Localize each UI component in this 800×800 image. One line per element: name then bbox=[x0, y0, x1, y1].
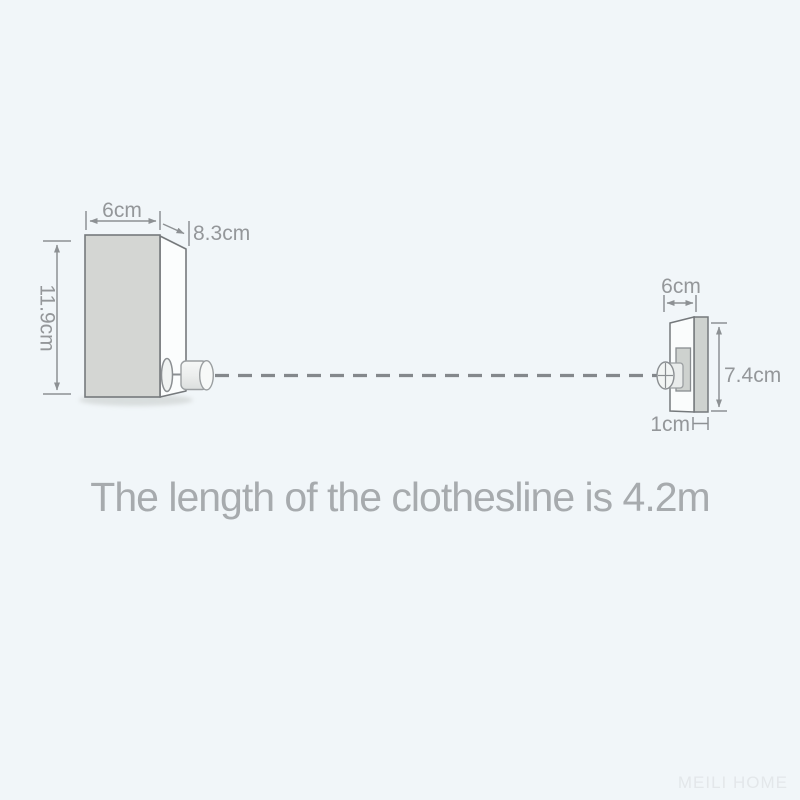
product-dimension-diagram: 6cm 8.3cm 11.9cm bbox=[0, 0, 800, 800]
right-unit: 6cm 7.4cm 1cm bbox=[650, 275, 781, 436]
left-height-label: 11.9cm bbox=[35, 284, 58, 351]
right-height-label: 7.4cm bbox=[724, 364, 781, 387]
caption-text: The length of the clothesline is 4.2m bbox=[0, 474, 800, 521]
diagram-canvas: 6cm 8.3cm 11.9cm bbox=[0, 0, 800, 800]
dimension-right-depth bbox=[693, 417, 708, 430]
spool-end-cap bbox=[200, 361, 214, 390]
left-unit-spool bbox=[162, 359, 214, 392]
right-width-label: 6cm bbox=[661, 275, 701, 298]
watermark-text: MEILI HOME bbox=[678, 773, 788, 793]
left-unit-front-face bbox=[85, 235, 160, 397]
spool-disc bbox=[162, 359, 173, 392]
left-width-label: 6cm bbox=[102, 199, 142, 222]
dim-arrow-line bbox=[163, 224, 184, 234]
right-unit-knob bbox=[657, 362, 683, 389]
right-depth-label: 1cm bbox=[650, 413, 690, 436]
right-unit-side-strip bbox=[694, 317, 708, 412]
left-depth-label: 8.3cm bbox=[193, 222, 250, 245]
